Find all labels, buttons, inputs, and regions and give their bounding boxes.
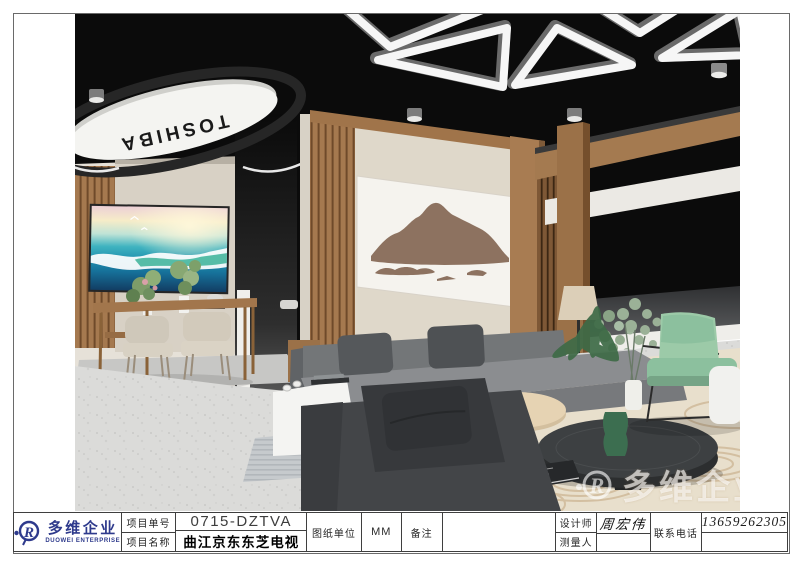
svg-text:R: R (23, 525, 34, 541)
phone-label: 联系电话 (654, 525, 698, 540)
unit-label: 图纸单位 (312, 525, 356, 540)
phone-value: 13659262305 (702, 514, 787, 530)
white-vase (625, 380, 642, 410)
watermark-text: 多维企业 (622, 460, 740, 509)
people-label-column: 设计师 测量人 (555, 513, 596, 551)
white-bench (709, 366, 740, 424)
surveyor-label: 测量人 (560, 534, 593, 549)
duowei-logo-mark-icon: R (14, 518, 41, 546)
project-name-label: 项目名称 (127, 534, 171, 549)
render-viewport: TOSHIBA (75, 14, 740, 511)
title-block: R 多维企业 DUOWEI ENTERPRISE 项目单号 项目名称 0715-… (13, 512, 788, 552)
company-logo: R 多维企业 DUOWEI ENTERPRISE (14, 513, 121, 551)
phone-label-cell: 联系电话 (650, 513, 701, 551)
phone-value-column: 13659262305 (701, 513, 787, 551)
unit-value-cell: MM (361, 513, 401, 551)
mountain-art-panel (357, 176, 515, 307)
designer-value: 周宏伟 (599, 513, 648, 533)
people-value-column: 周宏伟 (596, 513, 650, 551)
company-name: 多维企业 (48, 521, 118, 536)
project-no-label: 项目单号 (127, 515, 171, 530)
remark-label-cell: 备注 (401, 513, 442, 551)
project-name-value: 曲江京东东芝电视 (183, 531, 299, 551)
company-name-en: DUOWEI ENTERPRISE (45, 538, 120, 544)
svg-text:R: R (589, 473, 605, 498)
designer-label: 设计师 (560, 515, 593, 530)
drawing-sheet: TOSHIBA (0, 0, 800, 566)
project-value-column: 0715-DZTVA 曲江京东东芝电视 (175, 513, 306, 551)
project-label-column: 项目单号 项目名称 (121, 513, 176, 551)
green-vase (603, 412, 628, 456)
remark-label: 备注 (411, 525, 433, 540)
unit-label-cell: 图纸单位 (306, 513, 361, 551)
remark-value-cell (442, 513, 556, 551)
duowei-logo-mark-icon: R (575, 465, 615, 505)
unit-value: MM (371, 526, 391, 538)
project-no-value: 0715-DZTVA (191, 513, 292, 530)
watermark: R 多维企业 (575, 460, 740, 509)
showroom-render: TOSHIBA (75, 14, 740, 511)
